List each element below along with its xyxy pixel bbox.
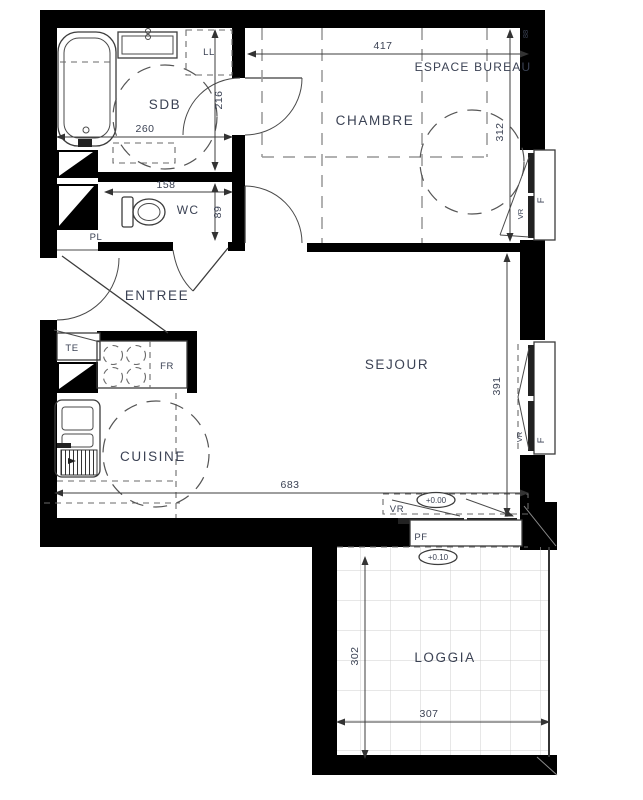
wall-right-middle bbox=[520, 240, 545, 340]
wall-kitchen-right bbox=[187, 331, 197, 393]
window-sejour-sash2 bbox=[528, 401, 534, 451]
window-chambre-sash1 bbox=[528, 153, 534, 193]
chambre-turning-circle bbox=[420, 110, 524, 214]
sink-bowl bbox=[62, 407, 93, 430]
wall-top bbox=[40, 10, 545, 28]
room-label-wc: WC bbox=[177, 203, 199, 217]
room-label-sdb: SDB bbox=[149, 97, 182, 112]
fridge-label: FR bbox=[160, 361, 174, 372]
toilet-cistern bbox=[122, 197, 133, 227]
bathtub-drain bbox=[83, 127, 89, 133]
wc-door-arc bbox=[173, 250, 193, 291]
wall-loggia-left bbox=[312, 547, 337, 775]
window-sejour-swing1 bbox=[518, 348, 529, 397]
bathtub-inner bbox=[64, 38, 110, 138]
cooktop-burner-1 bbox=[104, 346, 123, 365]
dim-label-158: 158 bbox=[156, 179, 175, 191]
window-chambre-swing2 bbox=[500, 235, 529, 237]
dim-label-312: 312 bbox=[494, 122, 506, 141]
washbasin-faucet-dot1 bbox=[146, 29, 151, 34]
wall-right-lower bbox=[520, 455, 545, 550]
wall-wc-bottom-left bbox=[98, 242, 173, 251]
cooktop-burner-3 bbox=[104, 368, 123, 387]
floor-plan-page: +0.00 +0.10 SDB WC ENTREE CHAMBRE ESPACE… bbox=[0, 0, 643, 800]
bathtub-outline bbox=[58, 32, 116, 146]
cooktop-burner-4 bbox=[127, 368, 146, 387]
window-sejour-label: F bbox=[536, 437, 547, 443]
room-label-loggia: LOGGIA bbox=[414, 650, 475, 665]
dim-label-307: 307 bbox=[419, 708, 438, 720]
room-label-entree: ENTREE bbox=[125, 288, 189, 303]
wall-chambre-sejour bbox=[307, 243, 545, 252]
shutter-sejour-label: VR bbox=[515, 431, 524, 442]
kitchen-fixtures bbox=[44, 330, 209, 518]
wall-entree-chambre bbox=[232, 135, 245, 243]
wall-kitchen-top bbox=[97, 331, 197, 341]
room-label-espace-bureau: ESPACE BUREAU bbox=[415, 60, 532, 74]
closet-label: PL bbox=[90, 232, 103, 243]
washbasin-inner bbox=[122, 36, 173, 54]
window-chambre-label: F bbox=[536, 197, 547, 203]
room-label-cuisine: CUISINE bbox=[120, 449, 186, 464]
entry-door-arc bbox=[57, 258, 119, 320]
chambre-door2-arc bbox=[245, 186, 302, 243]
wall-bottom-sejour bbox=[40, 518, 410, 547]
level-main-label: +0.00 bbox=[426, 496, 447, 505]
window-chambre-swing1 bbox=[500, 157, 529, 235]
window-chambre-frame bbox=[534, 150, 555, 240]
bathtub-faucet bbox=[78, 139, 92, 147]
dim-label-216: 216 bbox=[213, 90, 225, 109]
dim-label-683: 683 bbox=[280, 479, 299, 491]
dim-label-260: 260 bbox=[135, 123, 154, 135]
dim-label-89: 89 bbox=[212, 206, 224, 219]
wall-stub-sdb-chambre bbox=[232, 28, 245, 78]
floor-plan-drawing: +0.00 +0.10 SDB WC ENTREE CHAMBRE ESPACE… bbox=[0, 0, 643, 800]
room-label-chambre: CHAMBRE bbox=[336, 113, 415, 128]
shutter-chambre-label: VR bbox=[516, 208, 525, 219]
wc-door-leaf bbox=[193, 248, 228, 291]
room-label-sejour: SEJOUR bbox=[365, 357, 429, 372]
sdb-turning-circle bbox=[113, 65, 217, 169]
sink-hatch-board bbox=[61, 450, 97, 475]
toilet-bowl-inner bbox=[138, 204, 160, 221]
pf-shutter-dash-box bbox=[383, 494, 528, 514]
sink-faucet bbox=[57, 443, 71, 448]
french-window-label: PF bbox=[414, 532, 427, 543]
shutter-pf-label: VR bbox=[390, 504, 404, 515]
washing-machine-label: LL bbox=[203, 47, 215, 58]
cooktop-burner-2 bbox=[127, 346, 146, 365]
washbasin-faucet-dot2 bbox=[146, 35, 151, 40]
dim-label-417: 417 bbox=[373, 40, 392, 52]
dim-label-302: 302 bbox=[349, 646, 361, 665]
wall-wc-bottom-right bbox=[228, 242, 245, 251]
wall-left-upper bbox=[40, 10, 57, 258]
dim-label-391: 391 bbox=[491, 376, 503, 395]
window-chambre bbox=[500, 150, 555, 240]
window-chambre-sash2 bbox=[528, 196, 534, 238]
window-sejour-sash1 bbox=[528, 345, 534, 396]
wall-loggia-bottom bbox=[312, 755, 557, 775]
electrical-panel-label: TE bbox=[65, 343, 78, 354]
dim-label-88: 88 bbox=[521, 30, 530, 38]
level-loggia-label: +0.10 bbox=[428, 553, 449, 562]
chambre-door-arc bbox=[245, 78, 302, 135]
sdb-door-arc bbox=[183, 78, 240, 135]
wall-right-corner-block bbox=[545, 502, 557, 550]
